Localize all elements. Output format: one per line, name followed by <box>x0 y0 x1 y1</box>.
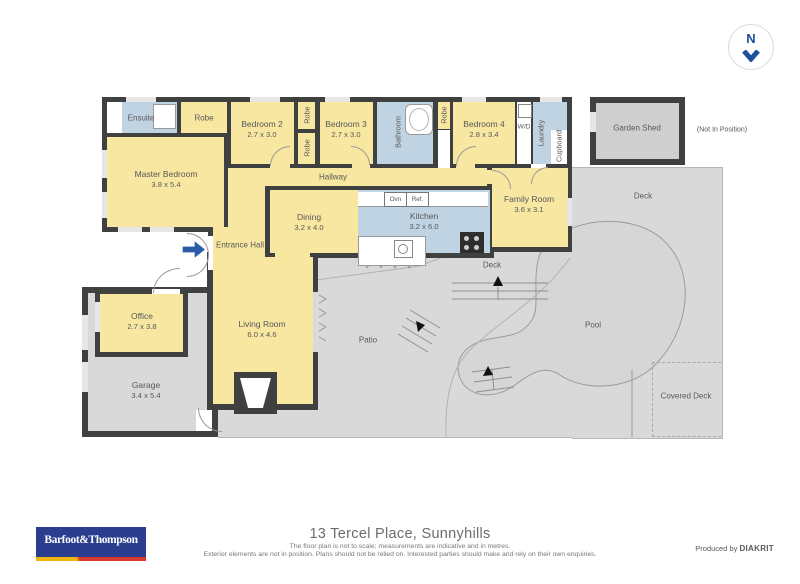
oven-label: Ovn <box>384 192 407 207</box>
kitchen-label: Kitchen3.2 x 6.0 <box>409 211 438 233</box>
office-door-arc <box>153 268 180 293</box>
disclaimer-line2: Exterior elements are not in position. P… <box>0 551 800 558</box>
address-title: 13 Tercel Place, Sunnyhills <box>0 526 800 542</box>
robe-c-label: Robe <box>440 106 449 123</box>
laundry-label: Laundry <box>537 120 546 146</box>
producer-name: DIAKRIT <box>739 544 774 553</box>
hallway-room <box>228 168 487 186</box>
garden-shed-label: Garden Shed <box>613 124 661 135</box>
deck-mid-label: Deck <box>483 261 501 272</box>
entrance-arrow-icon <box>181 238 208 261</box>
dining-label: Dining3.2 x 4.0 <box>294 212 323 234</box>
entrance-upper <box>228 186 265 227</box>
wd-label: W/D <box>518 124 531 133</box>
disclaimer-line1: The floor plan is not to scale; measurem… <box>0 543 800 550</box>
bedroom4-label: Bedroom 42.8 x 3.4 <box>463 119 505 141</box>
living-room-label: Living Room6.0 x 4.6 <box>238 319 285 341</box>
cupboard-label: Cupboard <box>555 130 564 162</box>
kitchen-peninsula <box>358 236 426 266</box>
robe-a-label: Robe <box>303 106 312 123</box>
bathroom-label: Bathroom <box>394 116 403 148</box>
fridge-label: Ref. <box>406 192 429 207</box>
office-label: Office2.7 x 3.8 <box>127 311 156 333</box>
bedroom3-label: Bedroom 32.7 x 3.0 <box>325 119 367 141</box>
bedroom2-label: Bedroom 22.7 x 3.0 <box>241 119 283 141</box>
robe-top-label: Robe <box>194 114 213 125</box>
not-in-position-note: (Not In Position) <box>697 125 747 134</box>
compass-arrow-icon <box>740 50 762 62</box>
produced-by: Produced by DIAKRIT <box>695 544 774 553</box>
pool-label: Pool <box>585 321 601 332</box>
deck-right-label: Deck <box>634 192 652 203</box>
entrance-hall-label: Entrance Hall <box>216 241 264 252</box>
master-bedroom-label: Master Bedroom3.8 x 5.4 <box>135 169 198 191</box>
garage-label: Garage3.4 x 5.4 <box>131 380 160 402</box>
stove <box>460 232 484 253</box>
floorplan-page: { "compass": { "letter": "N" }, "plan": … <box>0 0 800 584</box>
robe-b-label: Robe <box>303 139 312 156</box>
patio-label: Patio <box>359 336 377 347</box>
hallway-label: Hallway <box>319 173 347 184</box>
compass: N <box>728 24 774 70</box>
ensuite-label: Ensuite <box>128 114 155 125</box>
family-room-label: Family Room3.6 x 3.1 <box>504 194 554 216</box>
covered-deck-label: Covered Deck <box>661 392 712 403</box>
compass-north-label: N <box>729 31 773 46</box>
